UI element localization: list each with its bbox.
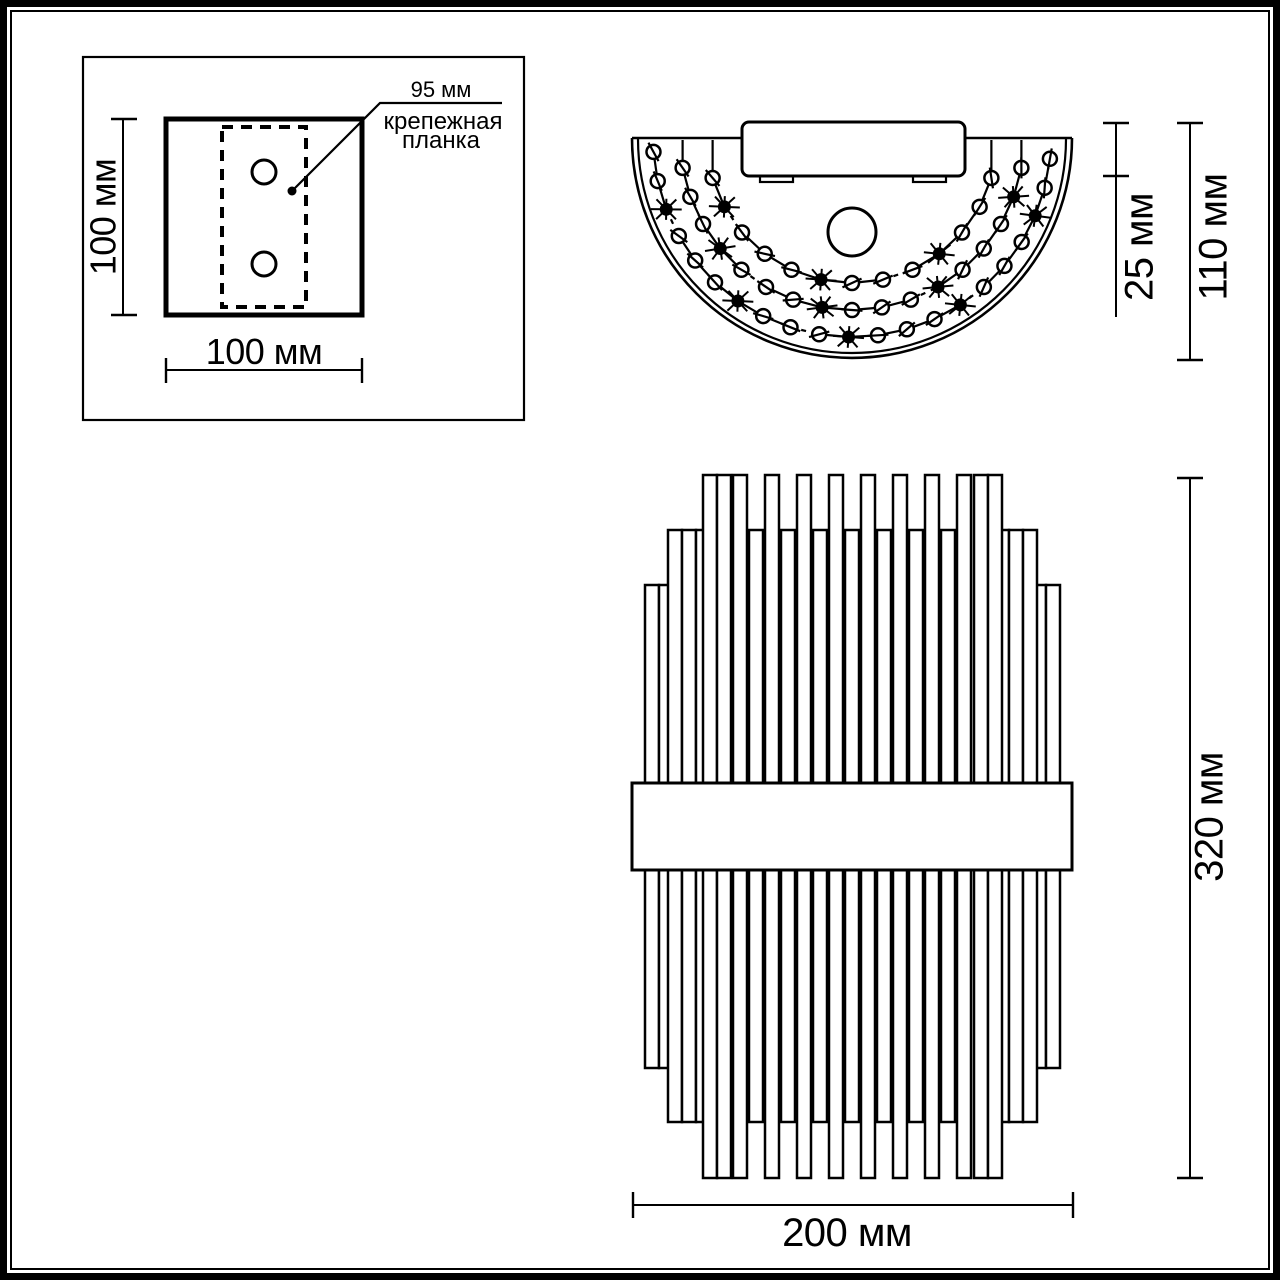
total-depth-label: 110 мм — [1192, 174, 1236, 301]
center-band — [632, 783, 1072, 870]
crystal-bead — [902, 293, 920, 307]
crystal-bead — [732, 263, 750, 277]
technical-drawing-page: 100 мм 100 мм 95 мм крепежная планка — [0, 0, 1280, 1280]
total-height-label: 320 мм — [1188, 752, 1232, 882]
mount-depth-dimension: 25 мм — [1103, 123, 1162, 317]
crystal-bead — [696, 215, 710, 234]
crystal-bead — [708, 275, 722, 290]
crystal-bead — [926, 312, 943, 326]
wall-plate-outline — [166, 119, 362, 315]
total-width-label: 200 мм — [782, 1211, 912, 1255]
crystal-bead — [687, 254, 703, 268]
crystal-bead — [683, 188, 697, 206]
drawing-canvas: 100 мм 100 мм 95 мм крепежная планка — [0, 0, 1280, 1280]
plate-height-label: 100 мм — [83, 159, 124, 276]
total-depth-dimension: 110 мм — [1177, 123, 1236, 360]
crystal-bead — [873, 300, 890, 314]
crystal-bead — [757, 280, 774, 294]
lamp-socket — [828, 208, 876, 256]
total-width-dimension: 200 мм — [633, 1192, 1073, 1255]
crystal-bead — [997, 257, 1011, 275]
lamp-top-view: 25 мм 110 мм — [632, 122, 1236, 360]
mounting-hole-top — [252, 160, 276, 184]
crystal-bead — [955, 223, 969, 241]
crystal-bead — [706, 170, 720, 186]
crystal-bead — [735, 224, 749, 241]
crystal-bead — [899, 322, 915, 336]
crystal-bead — [646, 143, 660, 161]
crystal-bead — [670, 229, 687, 243]
mounting-hole-bottom — [252, 252, 276, 276]
crystal-bead — [676, 159, 690, 176]
leader-dot — [288, 187, 297, 196]
crystal-bead — [977, 239, 991, 257]
mount-depth-label: 25 мм — [1118, 193, 1162, 301]
plate-height-dimension: 100 мм — [83, 119, 137, 315]
mounting-bar-note-line2: планка — [402, 127, 481, 154]
wall-plate-detail-view: 100 мм 100 мм 95 мм крепежная планка — [83, 57, 524, 420]
crystal-bead — [973, 198, 987, 216]
wall-mount-box — [742, 122, 965, 176]
crystal-bead — [994, 215, 1008, 232]
crystal-bead — [1015, 233, 1029, 250]
plate-width-dimension: 100 мм — [166, 331, 362, 383]
lamp-front-view: 320 мм 200 мм — [632, 475, 1232, 1255]
total-height-dimension: 320 мм — [1177, 478, 1232, 1178]
plate-width-label: 100 мм — [206, 331, 323, 372]
bar-length-label: 95 мм — [411, 77, 472, 102]
